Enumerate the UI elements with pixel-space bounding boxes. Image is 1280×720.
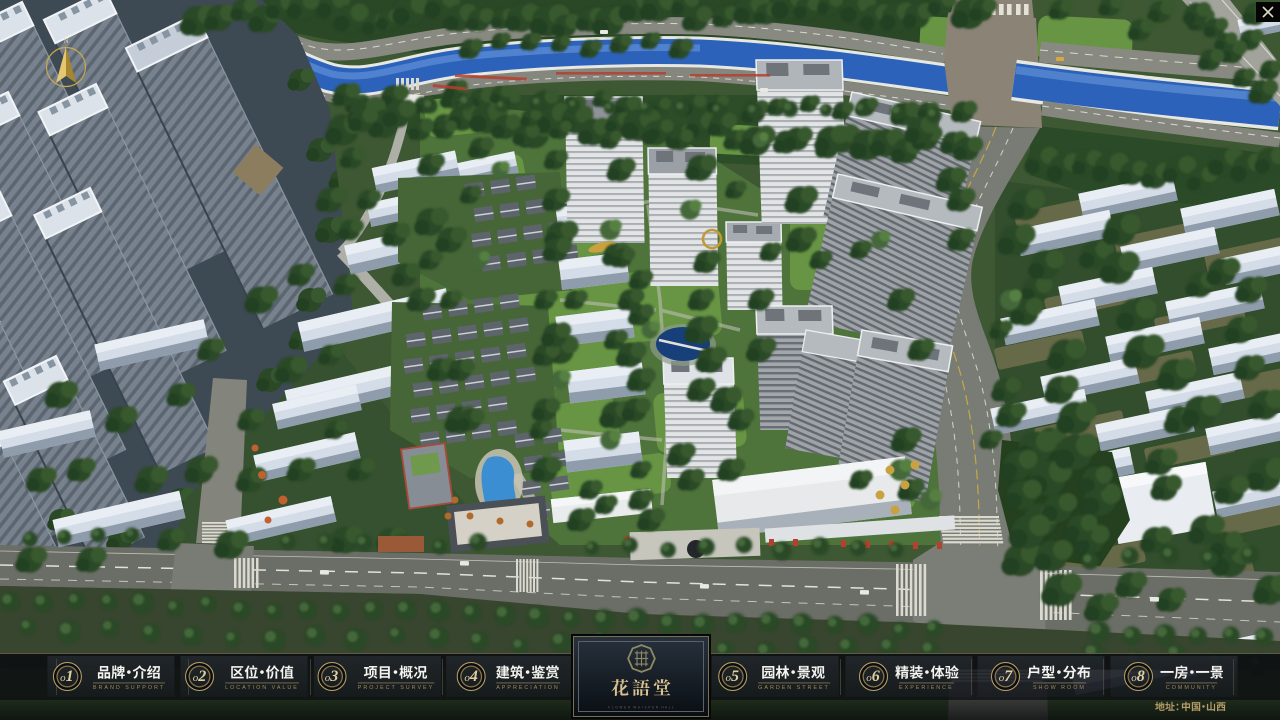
svg-text:N: N bbox=[63, 37, 68, 45]
